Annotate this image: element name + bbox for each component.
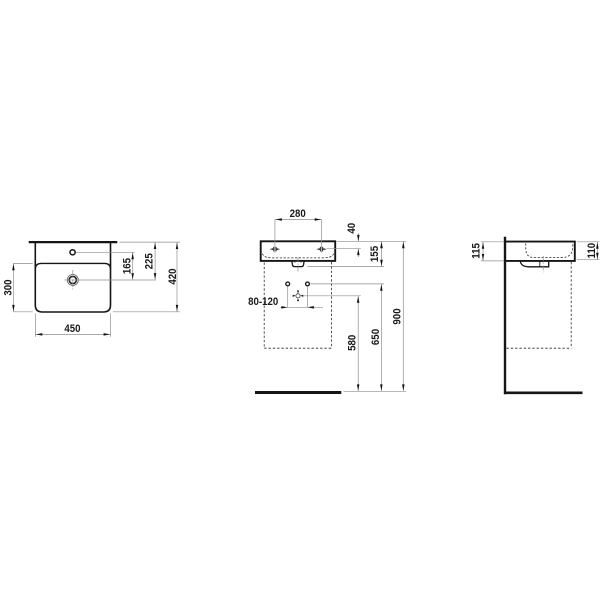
- svg-text:115: 115: [470, 243, 483, 259]
- svg-text:225: 225: [143, 253, 156, 269]
- svg-text:300: 300: [2, 279, 15, 295]
- svg-text:40: 40: [345, 223, 358, 234]
- svg-text:80-120: 80-120: [248, 295, 278, 308]
- svg-text:900: 900: [391, 308, 404, 324]
- svg-text:165: 165: [121, 258, 134, 274]
- svg-text:110: 110: [585, 243, 598, 259]
- svg-text:155: 155: [368, 246, 381, 262]
- svg-text:580: 580: [346, 335, 359, 351]
- svg-text:420: 420: [166, 268, 179, 284]
- svg-text:450: 450: [64, 322, 80, 335]
- svg-text:650: 650: [369, 329, 382, 345]
- svg-text:280: 280: [290, 207, 306, 220]
